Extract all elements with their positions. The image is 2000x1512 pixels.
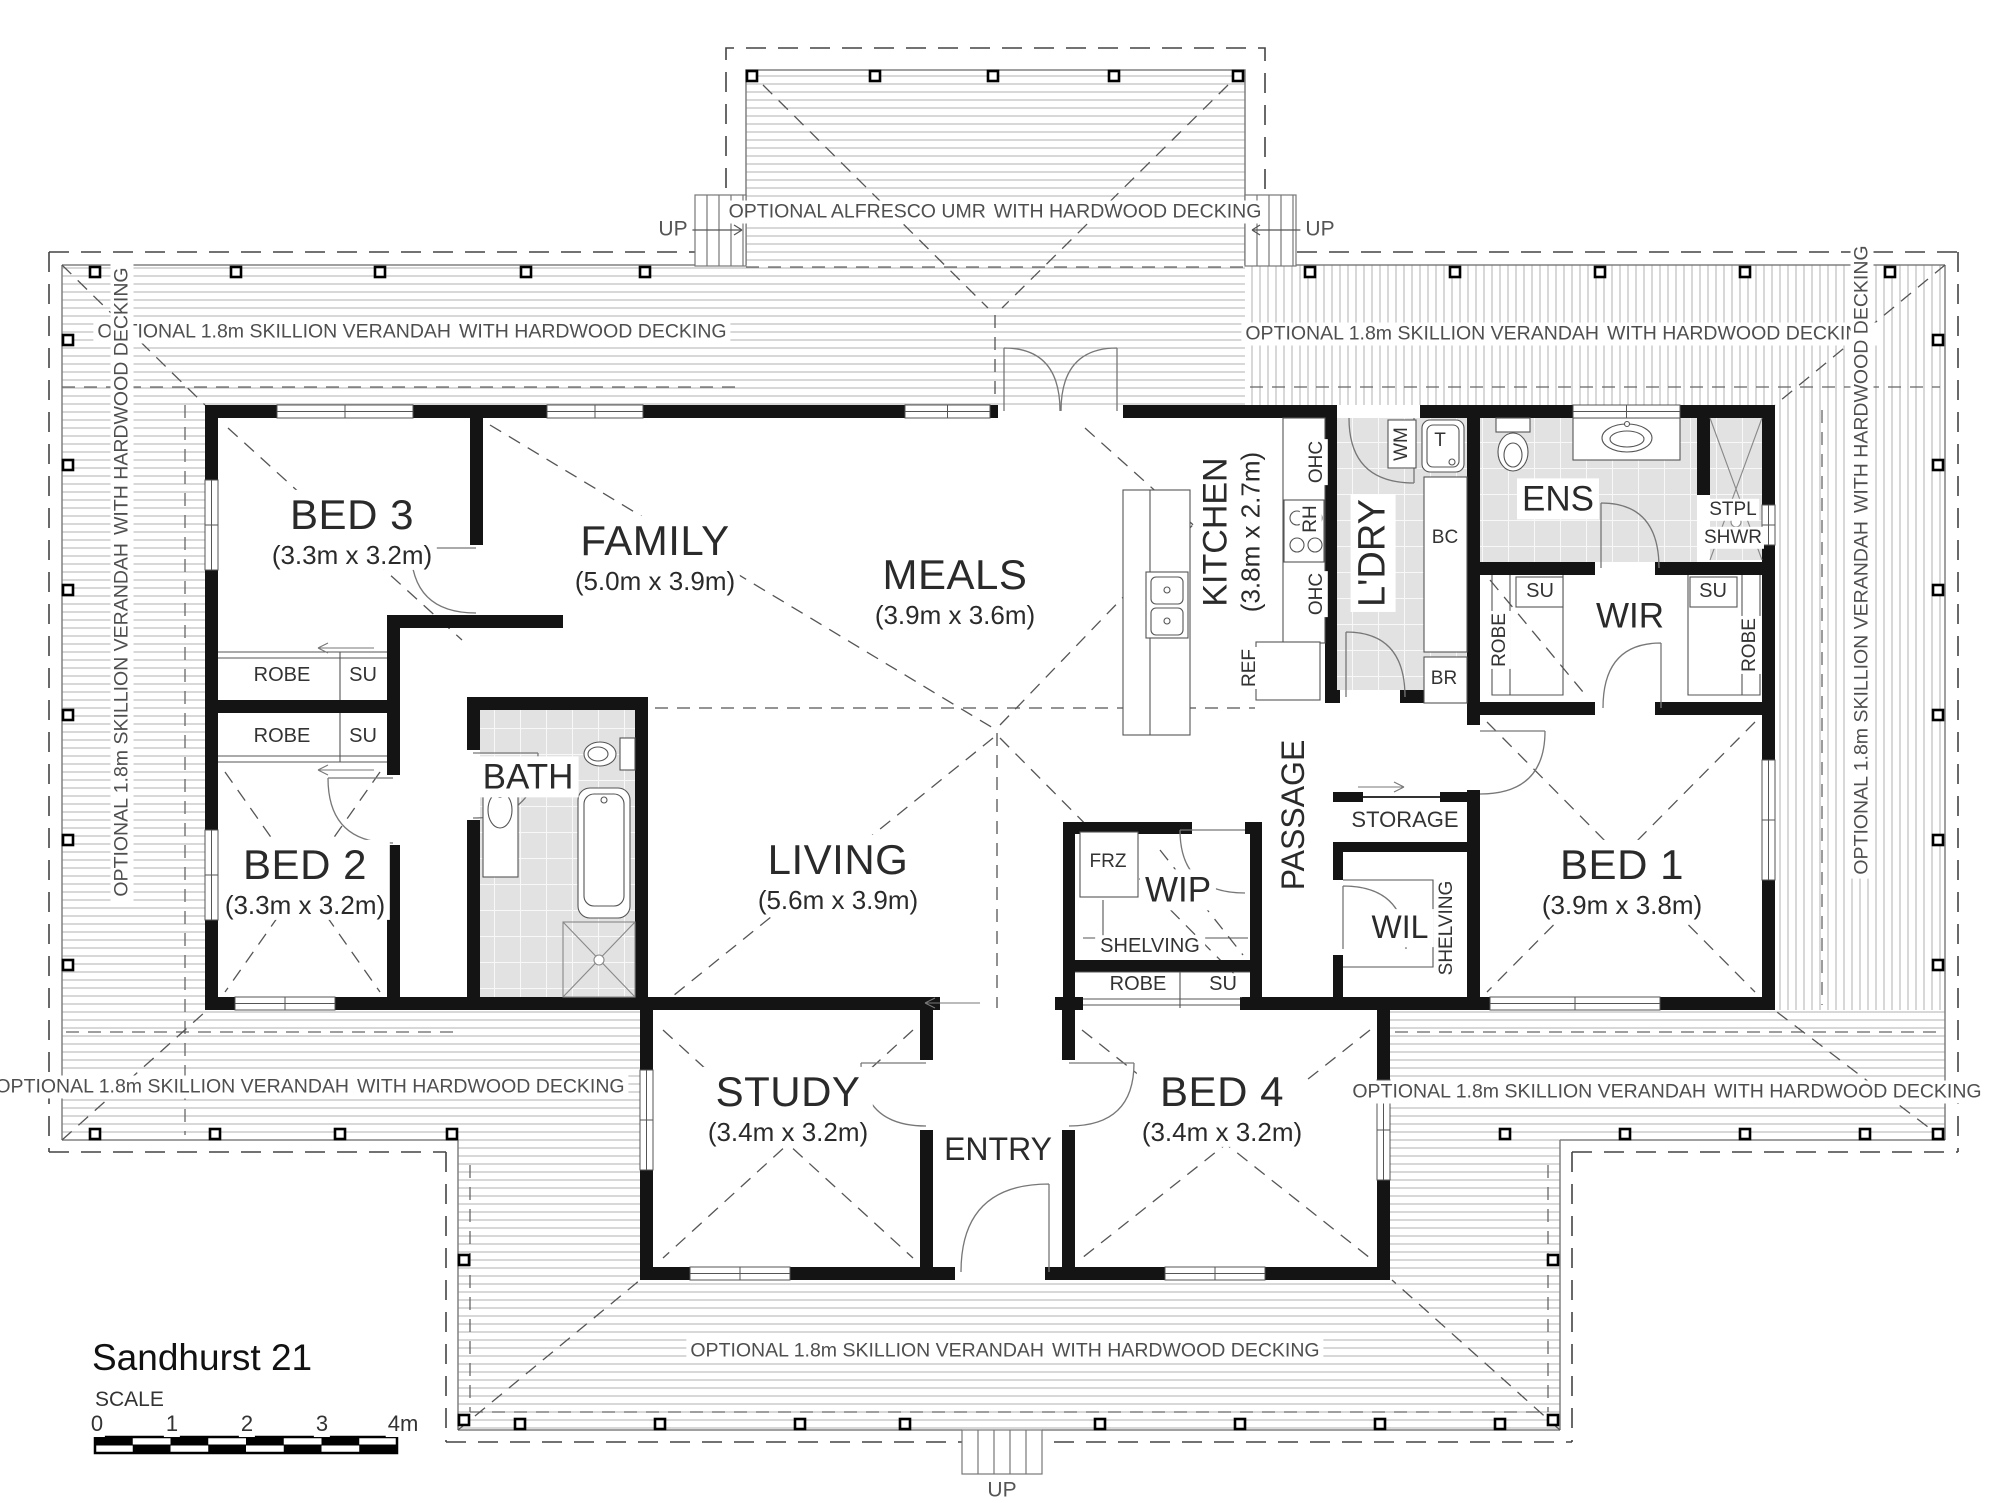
room-label-entry: ENTRY xyxy=(939,1131,1057,1169)
verandah-post-icon xyxy=(1095,1419,1105,1429)
verandah-post-icon xyxy=(1233,71,1243,81)
verandah-post-icon xyxy=(63,335,73,345)
verandah-post-icon xyxy=(210,1129,220,1139)
shower-icon xyxy=(563,922,635,997)
verandah-post-icon xyxy=(1595,267,1605,277)
window-icon xyxy=(277,405,413,418)
verandah-post-icon xyxy=(1500,1129,1510,1139)
window-icon xyxy=(205,480,218,570)
scale-tick-0: 0 xyxy=(89,1411,105,1437)
verandah-post-icon xyxy=(795,1419,805,1429)
verandah-post-icon xyxy=(1620,1129,1630,1139)
su-label-bed4: SU xyxy=(1204,973,1242,997)
su-label-wir-left: SU xyxy=(1521,580,1559,604)
verandah-post-icon xyxy=(1740,267,1750,277)
room-label-wir: WIR xyxy=(1591,595,1669,636)
verandah-post-icon xyxy=(1305,267,1315,277)
verandah-label-bottom-left: OPTIONAL 1.8m SKILLION VERANDAHWITH HARD… xyxy=(0,1076,634,1099)
verandah-post-icon xyxy=(1495,1419,1505,1429)
up-label-top-left: UP xyxy=(653,218,692,243)
bathtub-icon xyxy=(578,788,630,918)
window-icon xyxy=(1762,760,1775,880)
verandah-post-icon xyxy=(1933,460,1943,470)
verandah-post-icon xyxy=(515,1419,525,1429)
verandah-post-icon xyxy=(231,267,241,277)
room-label-bath: BATH xyxy=(478,756,579,797)
tub-label: T xyxy=(1432,430,1448,452)
room-label-bed4: BED 4(3.4m x 3.2m) xyxy=(1137,1067,1307,1147)
window-icon xyxy=(1165,1267,1265,1280)
verandah-post-icon xyxy=(90,1129,100,1139)
fridge-space xyxy=(1256,642,1320,700)
verandah-post-icon xyxy=(640,267,650,277)
sink-icon xyxy=(1146,572,1188,638)
verandah-post-icon xyxy=(1235,1419,1245,1429)
linen-label: BR xyxy=(1429,668,1459,690)
verandah-post-icon xyxy=(375,267,385,277)
alfresco-deck xyxy=(746,70,1245,405)
verandah-label-right: OPTIONAL 1.8m SKILLION VERANDAHWITH HARD… xyxy=(1851,236,1874,883)
kitchen-island xyxy=(1123,490,1190,735)
window-icon xyxy=(640,1070,653,1170)
scale-label: SCALE xyxy=(95,1388,164,1412)
robe-label-bed4: ROBE xyxy=(1105,973,1172,997)
room-label-laundry: L'DRY xyxy=(1351,494,1396,612)
room-label-bed2: BED 2(3.3m x 3.2m) xyxy=(220,840,390,920)
broom-cupboard xyxy=(1424,477,1467,652)
room-label-storage: STORAGE xyxy=(1346,807,1463,833)
ens-vanity-icon xyxy=(1573,418,1680,460)
verandah-post-icon xyxy=(521,267,531,277)
verandah-post-icon xyxy=(459,1255,469,1265)
verandah-post-icon xyxy=(1933,710,1943,720)
verandah-post-icon xyxy=(1933,585,1943,595)
room-label-meals: MEALS(3.9m x 3.6m) xyxy=(870,550,1040,630)
verandah-post-icon xyxy=(1860,1129,1870,1139)
robe-label-wir-right: ROBE xyxy=(1739,616,1761,674)
verandah-post-icon xyxy=(900,1419,910,1429)
verandah-post-icon xyxy=(1885,267,1895,277)
su-label-wir-right: SU xyxy=(1694,580,1732,604)
verandah-post-icon xyxy=(1933,335,1943,345)
shelving-label-wil: SHELVING xyxy=(1436,879,1458,978)
verandah-label-top-left: OPTIONAL 1.8m SKILLION VERANDAHWITH HARD… xyxy=(88,321,735,344)
robe-label-2: ROBE xyxy=(249,725,316,749)
verandah-post-icon xyxy=(870,71,880,81)
ens-toilet-icon xyxy=(1496,418,1530,471)
verandah-post-icon xyxy=(447,1129,457,1139)
shwr-label: SHWR xyxy=(1702,527,1764,549)
room-label-bed3: BED 3(3.3m x 3.2m) xyxy=(267,490,437,570)
verandah-post-icon xyxy=(1933,835,1943,845)
verandah-post-icon xyxy=(63,710,73,720)
fridge-label: REF xyxy=(1239,647,1261,689)
verandah-label-bottom-center: OPTIONAL 1.8m SKILLION VERANDAHWITH HARD… xyxy=(681,1340,1328,1363)
washing-machine-label: WM xyxy=(1391,425,1413,463)
su-label-2: SU xyxy=(344,725,382,749)
window-icon xyxy=(1573,405,1680,418)
room-label-kitchen: KITCHEN(3.8m x 2.7m) xyxy=(1196,447,1267,617)
window-icon xyxy=(1490,997,1660,1010)
room-label-wip: WIP xyxy=(1140,869,1216,910)
room-label-living: LIVING(5.6m x 3.9m) xyxy=(753,835,923,915)
floorplan-canvas xyxy=(0,0,2000,1512)
room-label-family: FAMILY(5.0m x 3.9m) xyxy=(570,516,740,596)
stair-bottom xyxy=(962,1430,1042,1474)
window-icon xyxy=(905,405,990,418)
window-icon xyxy=(547,405,643,418)
verandah-post-icon xyxy=(459,1415,469,1425)
window-icon xyxy=(205,830,218,920)
shelving-label-wip: SHELVING xyxy=(1095,935,1205,959)
verandah-label-left: OPTIONAL 1.8m SKILLION VERANDAHWITH HARD… xyxy=(111,258,134,905)
freezer-label: FRZ xyxy=(1088,851,1129,873)
verandah-post-icon xyxy=(335,1129,345,1139)
verandah-label-bottom-right: OPTIONAL 1.8m SKILLION VERANDAHWITH HARD… xyxy=(1343,1081,1990,1104)
verandah-post-icon xyxy=(747,71,757,81)
room-label-wil: WIL xyxy=(1367,909,1434,947)
up-label-top-right: UP xyxy=(1300,218,1339,243)
scale-tick-4: 4m xyxy=(386,1411,421,1437)
alfresco-label: OPTIONAL ALFRESCO UMRWITH HARDWOOD DECKI… xyxy=(720,201,1271,224)
verandah-wing-right xyxy=(1390,1140,1560,1430)
room-label-study: STUDY(3.4m x 3.2m) xyxy=(703,1067,873,1147)
verandah-post-icon xyxy=(63,960,73,970)
scale-tick-2: 2 xyxy=(239,1411,255,1437)
stpl-label: STPL xyxy=(1707,499,1759,521)
scale-tick-3: 3 xyxy=(314,1411,330,1437)
verandah-post-icon xyxy=(63,835,73,845)
room-label-bed1: BED 1(3.9m x 3.8m) xyxy=(1537,840,1707,920)
room-label-ens: ENS xyxy=(1517,478,1599,519)
verandah-post-icon xyxy=(90,267,100,277)
verandah-post-icon xyxy=(1375,1419,1385,1429)
window-icon xyxy=(690,1267,790,1280)
floor-plan-page: OPTIONAL ALFRESCO UMRWITH HARDWOOD DECKI… xyxy=(0,0,2000,1512)
verandah-post-icon xyxy=(988,71,998,81)
verandah-post-icon xyxy=(1933,960,1943,970)
verandah-post-icon xyxy=(655,1419,665,1429)
verandah-decking xyxy=(62,70,1945,1430)
verandah-label-top-right: OPTIONAL 1.8m SKILLION VERANDAHWITH HARD… xyxy=(1236,323,1883,346)
verandah-bottom-right xyxy=(1390,1010,1945,1140)
verandah-wing-left xyxy=(458,1010,640,1430)
verandah-post-icon xyxy=(1548,1415,1558,1425)
su-label-1: SU xyxy=(344,664,382,688)
verandah-post-icon xyxy=(1933,1129,1943,1139)
verandah-post-icon xyxy=(63,460,73,470)
robe-label-1: ROBE xyxy=(249,664,316,688)
broom-cupboard-label: BC xyxy=(1430,527,1460,549)
up-label-bottom: UP xyxy=(982,1479,1021,1504)
room-label-passage: PASSAGE xyxy=(1275,735,1313,896)
verandah-post-icon xyxy=(63,585,73,595)
verandah-post-icon xyxy=(1450,267,1460,277)
robe-label-wir-left: ROBE xyxy=(1489,611,1511,669)
plan-title: Sandhurst 21 xyxy=(92,1337,312,1379)
ohc-label-2: OHC xyxy=(1306,571,1328,617)
rangehood-label: RH xyxy=(1300,503,1322,534)
window-icon xyxy=(235,997,335,1010)
verandah-post-icon xyxy=(1740,1129,1750,1139)
scale-tick-1: 1 xyxy=(164,1411,180,1437)
verandah-post-icon xyxy=(1109,71,1119,81)
ohc-label-1: OHC xyxy=(1306,439,1328,485)
verandah-post-icon xyxy=(1548,1255,1558,1265)
scale-bar xyxy=(95,1437,397,1453)
